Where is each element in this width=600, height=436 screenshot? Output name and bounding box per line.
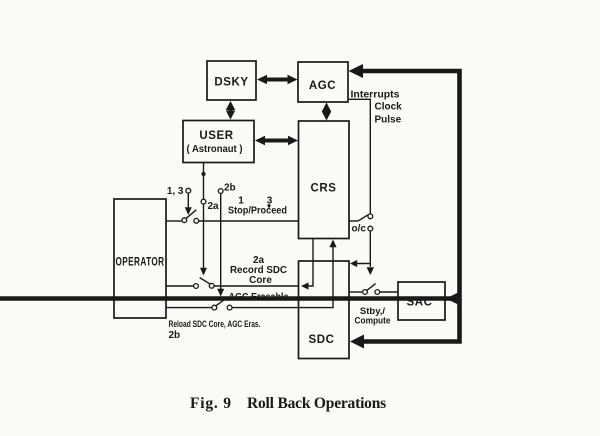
figure-caption-number: Fig. 9 (190, 395, 232, 412)
arrowhead-into-sdc (350, 335, 364, 349)
interrupts-clock-pulse-line (348, 99, 370, 214)
reload-tag-2b: 2b (169, 330, 181, 341)
label-2a-top: 2a (208, 201, 220, 212)
arrowhead-into-sac (446, 292, 459, 305)
clock-label: Clock (375, 102, 403, 113)
user-sublabel: ( Astronaut ) (187, 144, 243, 155)
arrowhead-into-agc (349, 64, 364, 78)
user-label: USER (199, 130, 233, 142)
stby-compute-switch (349, 284, 398, 295)
control-2a-line (200, 163, 207, 276)
pulse-label: Pulse (375, 115, 402, 126)
arrow-dsky-agc (257, 75, 298, 84)
record-line3: AGC Erasable (229, 292, 289, 303)
figure-roll-back-operations: DSKY AGC USER ( Astronaut ) CRS OPERATOR… (0, 0, 600, 436)
junction-dot (201, 172, 205, 176)
figure-caption-title: Roll Back Operations (247, 395, 387, 412)
record-switch (166, 278, 299, 289)
arrowhead-down-switch2 (200, 268, 207, 276)
arrowhead-down-stby (367, 267, 374, 275)
compute-label: Compute (355, 316, 391, 327)
diagram-canvas: DSKY AGC USER ( Astronaut ) CRS OPERATOR… (0, 0, 600, 436)
sdc-label: SDC (308, 334, 334, 346)
sac-label: SAC (406, 297, 432, 309)
control-1-3 (185, 188, 192, 215)
arrowhead-into-sdc-top (350, 260, 357, 267)
label-2b-top: 2b (224, 183, 236, 194)
agc-label: AGC (309, 80, 336, 92)
oc-to-sdc-line (350, 231, 374, 275)
label-1-3: 1, 3 (167, 186, 184, 197)
crs-box (299, 121, 350, 239)
record-line2: Core (249, 275, 272, 286)
arrowhead-up-crs (329, 240, 336, 248)
crs-to-record-line (301, 239, 313, 290)
reload-label: Reload SDC Core, AGC Eras. (169, 319, 261, 330)
dsky-label: DSKY (214, 77, 248, 89)
arrowhead-down-switch3 (217, 289, 224, 297)
interrupts-label: Interrupts (351, 90, 400, 101)
crs-label: CRS (310, 183, 336, 195)
operator-label: OPERATOR (116, 257, 165, 269)
stop-proceed-label: Stop/Proceed (228, 206, 287, 217)
arrow-user-crs (255, 136, 298, 145)
oc-label: o/c (352, 224, 367, 235)
arrow-agc-crs (322, 103, 331, 121)
arrowhead-left-record (301, 282, 309, 289)
arrow-dsky-user (226, 101, 235, 120)
